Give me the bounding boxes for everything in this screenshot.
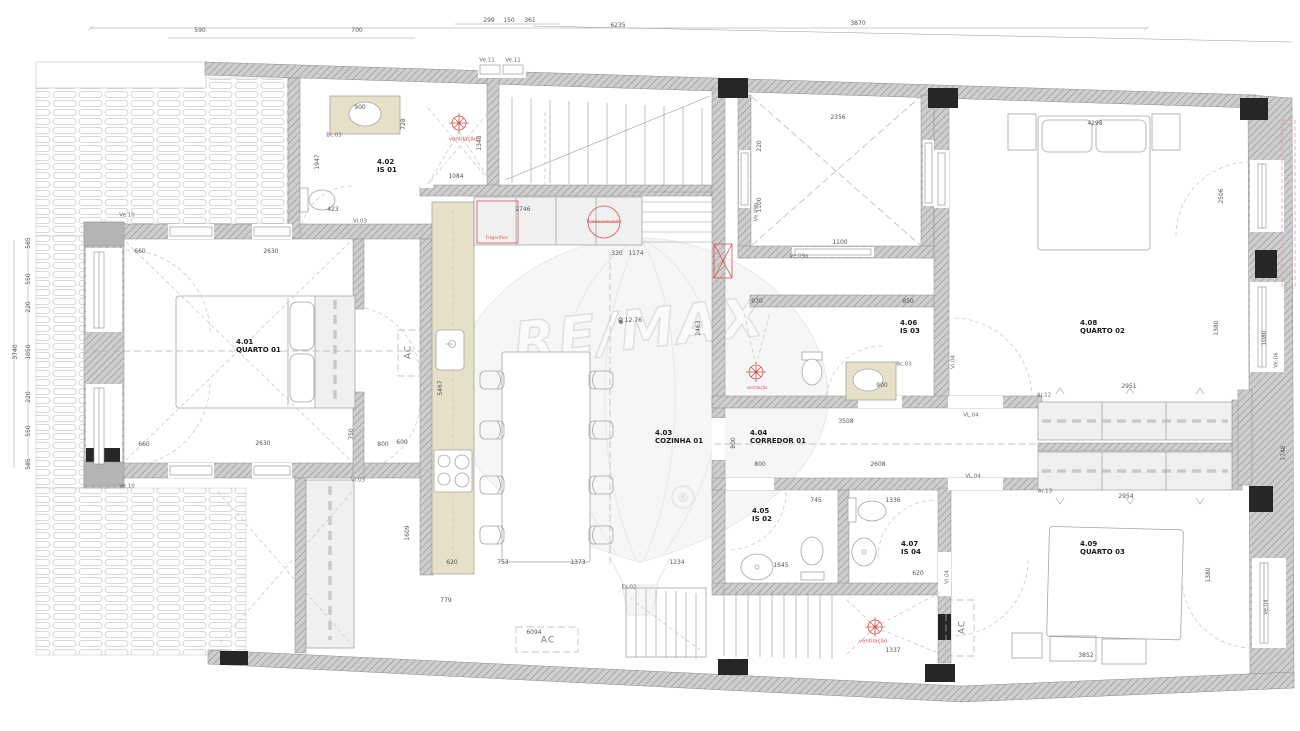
lightwell: [752, 97, 920, 245]
is04-fixtures: [848, 498, 936, 566]
fan-icon: [449, 113, 469, 133]
bed-quarto02: [952, 114, 1250, 398]
is01-fixtures: [300, 96, 400, 238]
plan-svg: RE/MAX ®: [0, 0, 1300, 731]
floorplan-canvas: RE/MAX ®: [0, 0, 1300, 731]
kitchen-sink: [436, 330, 464, 370]
vestibule-door-swings: [365, 308, 420, 470]
ceiling-light-marker: [619, 320, 623, 324]
cooktop: [434, 450, 472, 492]
watermark-registered-icon: ®: [677, 491, 690, 506]
bed-quarto03: [952, 526, 1252, 664]
bed-quarto01: [176, 296, 318, 408]
